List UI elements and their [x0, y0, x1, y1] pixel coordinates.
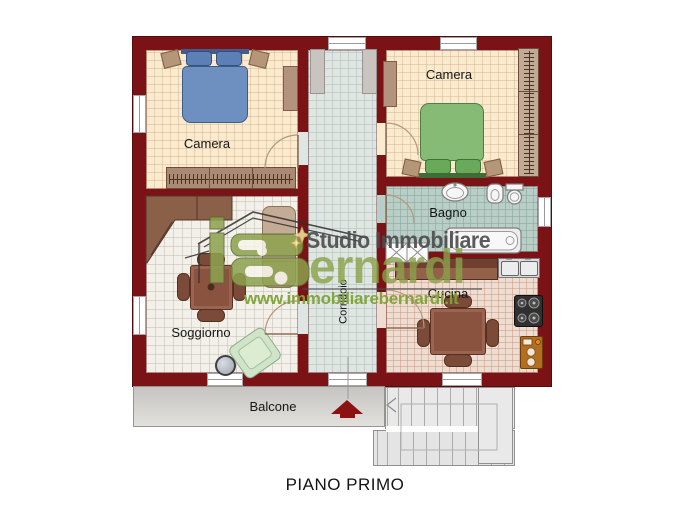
- watermark-website-text: www.immobiliarebernardi.it: [244, 289, 459, 309]
- oven-cabinet: [520, 336, 543, 369]
- label-balcone: Balcone: [238, 399, 308, 414]
- label-soggiorno: Soggiorno: [165, 325, 237, 340]
- chair-cucina-bottom: [444, 354, 472, 367]
- door-opening-camera-2: [377, 123, 386, 155]
- corridor-cabinet-left: [310, 49, 325, 94]
- bed-green-headboard: [419, 173, 486, 178]
- door-opening-bagno: [377, 195, 386, 223]
- chair-cucina-left: [417, 319, 430, 347]
- chair-soggiorno-left: [177, 273, 190, 301]
- window-soggiorno-left: [133, 296, 146, 335]
- balcony-door: [328, 373, 367, 386]
- bed-green-duvet: [420, 103, 484, 161]
- table-cucina: [430, 308, 486, 355]
- sofa-right-soggiorno: [262, 206, 296, 288]
- closet-rail-camera-1: [166, 167, 296, 189]
- bed-green-pillow-right: [455, 159, 481, 174]
- window-camera-2-top: [440, 37, 477, 50]
- stairs-direction-gap: [386, 426, 478, 432]
- chair-soggiorno-top: [197, 253, 225, 266]
- kitchen-sink-unit: [498, 258, 540, 278]
- window-cucina-bottom: [442, 373, 482, 386]
- bed-blue-pillow-right: [216, 51, 242, 66]
- corridor-cabinet-right: [362, 49, 377, 94]
- bed-green-pillow-left: [425, 159, 451, 174]
- stairs-landing: [478, 387, 513, 464]
- dresser-camera-2: [383, 61, 397, 107]
- bed-blue-pillow-left: [186, 51, 212, 66]
- label-camera-1: Camera: [172, 136, 242, 151]
- bed-blue-duvet: [182, 66, 248, 123]
- watermark-brand-text: ernardi: [309, 244, 465, 292]
- chair-cucina-right: [486, 319, 499, 347]
- dresser-camera-1: [283, 66, 298, 111]
- table-soggiorno: [190, 265, 233, 310]
- wardrobe-camera-2: [518, 48, 539, 177]
- window-bagno-right: [538, 197, 551, 227]
- stove: [514, 295, 543, 327]
- floorplan-canvas: Camera Camera Bagno Cucina Soggiorno Cor…: [0, 0, 692, 518]
- window-corridoio-top: [328, 37, 366, 50]
- label-camera-2: Camera: [417, 67, 481, 82]
- window-camera-1-left: [133, 95, 146, 133]
- nightstand-camera-2-left: [402, 158, 422, 177]
- label-bagno: Bagno: [418, 205, 478, 220]
- side-table-round: [215, 355, 236, 376]
- plan-title: PIANO PRIMO: [245, 475, 445, 495]
- door-opening-camera-1: [298, 132, 308, 165]
- chair-soggiorno-bottom: [197, 309, 225, 322]
